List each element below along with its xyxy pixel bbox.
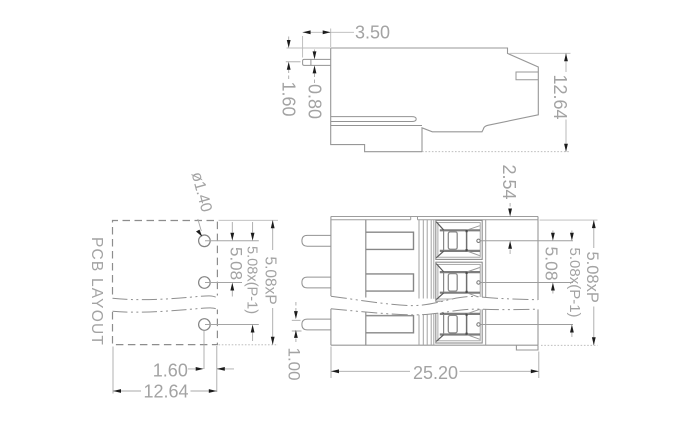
- svg-text:5.08xP: 5.08xP: [583, 252, 601, 303]
- svg-text:1.00: 1.00: [285, 348, 304, 381]
- svg-text:1.60: 1.60: [153, 361, 188, 381]
- svg-text:PCB LAYOUT: PCB LAYOUT: [88, 237, 105, 346]
- svg-text:ø1.40: ø1.40: [188, 170, 215, 214]
- svg-text:12.64: 12.64: [144, 382, 189, 402]
- svg-text:3.50: 3.50: [355, 23, 390, 43]
- svg-text:5.08x(P-1): 5.08x(P-1): [244, 246, 260, 314]
- svg-text:1.60: 1.60: [279, 82, 299, 117]
- svg-text:5.08xP: 5.08xP: [262, 257, 279, 305]
- svg-text:5.08: 5.08: [227, 247, 246, 280]
- svg-text:12.64: 12.64: [550, 75, 570, 120]
- svg-text:2.54: 2.54: [499, 165, 519, 200]
- svg-text:5.08x(P-1): 5.08x(P-1): [566, 248, 583, 318]
- svg-text:5.08: 5.08: [542, 247, 562, 281]
- svg-text:25.20: 25.20: [413, 363, 458, 383]
- svg-text:0.80: 0.80: [305, 84, 325, 119]
